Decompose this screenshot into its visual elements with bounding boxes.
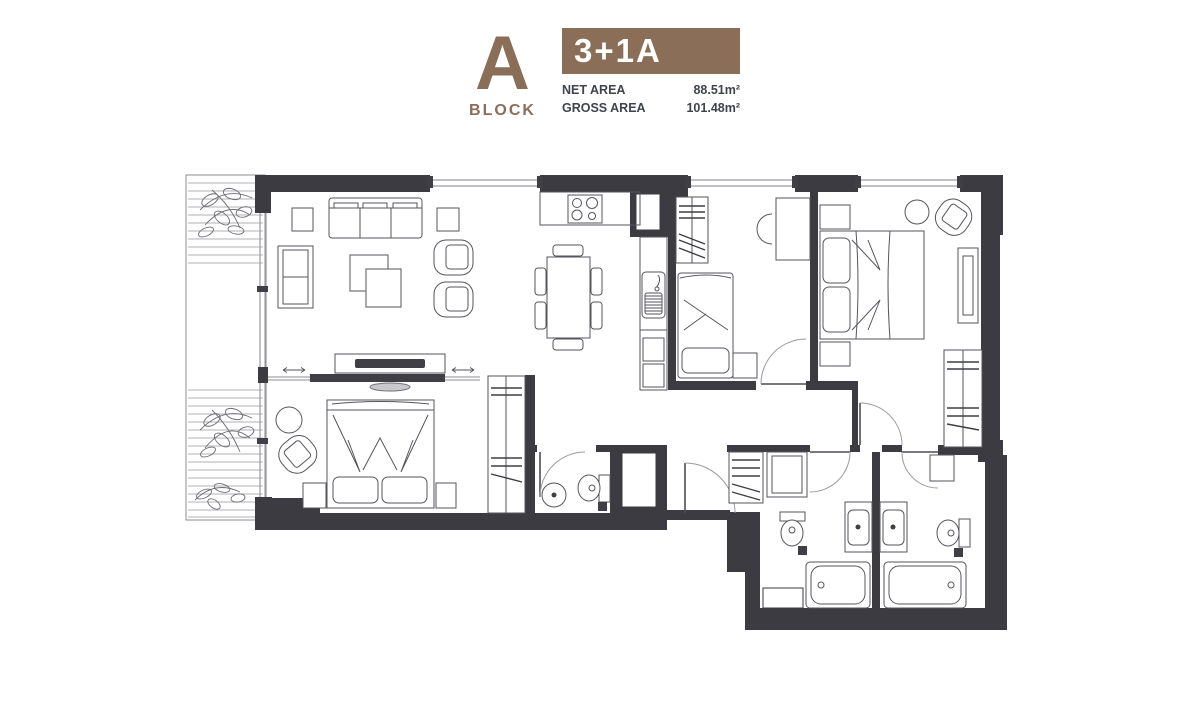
coffee-table — [366, 269, 401, 307]
sink-icon — [880, 502, 907, 552]
wardrobe — [488, 376, 525, 513]
dining-chair — [535, 268, 546, 295]
desk-chair — [757, 214, 772, 244]
master-door — [860, 403, 902, 445]
double-bed — [327, 400, 434, 508]
side-table — [437, 208, 459, 231]
toilet-icon — [937, 519, 970, 557]
nightstand — [303, 483, 326, 508]
nightstand — [820, 342, 850, 366]
floor-plan — [0, 0, 1200, 711]
kitchen-sink-icon — [642, 272, 665, 318]
double-bed — [820, 231, 924, 339]
slide-arrow-icon — [283, 368, 305, 373]
sofa — [329, 198, 422, 238]
shower-step — [763, 588, 803, 608]
armchair — [434, 240, 473, 275]
tv-partition — [268, 354, 480, 391]
dining-chair — [553, 245, 583, 256]
balcony — [186, 175, 265, 520]
armchair — [273, 430, 322, 479]
wardrobe — [944, 350, 982, 447]
bedroom-3 — [273, 376, 525, 513]
single-bed — [678, 273, 733, 378]
wc — [542, 475, 610, 511]
dining-chair — [553, 339, 583, 350]
toilet-icon — [578, 475, 610, 511]
living-room — [268, 198, 480, 391]
sink-icon — [845, 502, 872, 552]
bathtub-icon — [806, 562, 870, 608]
bathtub-icon — [884, 562, 966, 608]
cabinet — [767, 452, 807, 497]
dining-chair — [591, 268, 602, 295]
bedroom-2 — [676, 197, 810, 378]
side-table — [292, 208, 313, 231]
bedroom2-door — [761, 339, 806, 384]
slide-arrow-icon — [452, 368, 474, 373]
cabinet — [930, 455, 954, 481]
bathroom-right — [880, 455, 970, 608]
dressing-area — [944, 350, 982, 447]
round-table — [905, 200, 929, 224]
toilet-icon — [780, 512, 807, 555]
armchair — [434, 282, 473, 317]
armchair — [930, 194, 977, 241]
dining-chair — [591, 302, 602, 329]
nightstand — [820, 205, 850, 229]
sideboard — [278, 246, 313, 308]
washbasin-icon — [542, 483, 566, 507]
desk — [757, 198, 810, 260]
hall-door — [685, 463, 735, 513]
round-table — [276, 407, 302, 433]
dining-table — [547, 257, 590, 338]
dresser — [958, 248, 978, 323]
stove-icon — [568, 195, 602, 223]
linen-closet — [729, 452, 763, 503]
dining-area — [535, 245, 602, 350]
nightstand — [436, 483, 456, 508]
page: A BLOCK 3+1A NET AREA 88.51m² GROSS AREA… — [0, 0, 1200, 711]
wardrobe — [676, 197, 708, 263]
dining-chair — [535, 302, 546, 329]
shaft-niche — [622, 453, 656, 507]
master-bedroom — [820, 194, 978, 366]
bathroom-left-door — [810, 452, 850, 492]
nightstand — [733, 353, 757, 378]
